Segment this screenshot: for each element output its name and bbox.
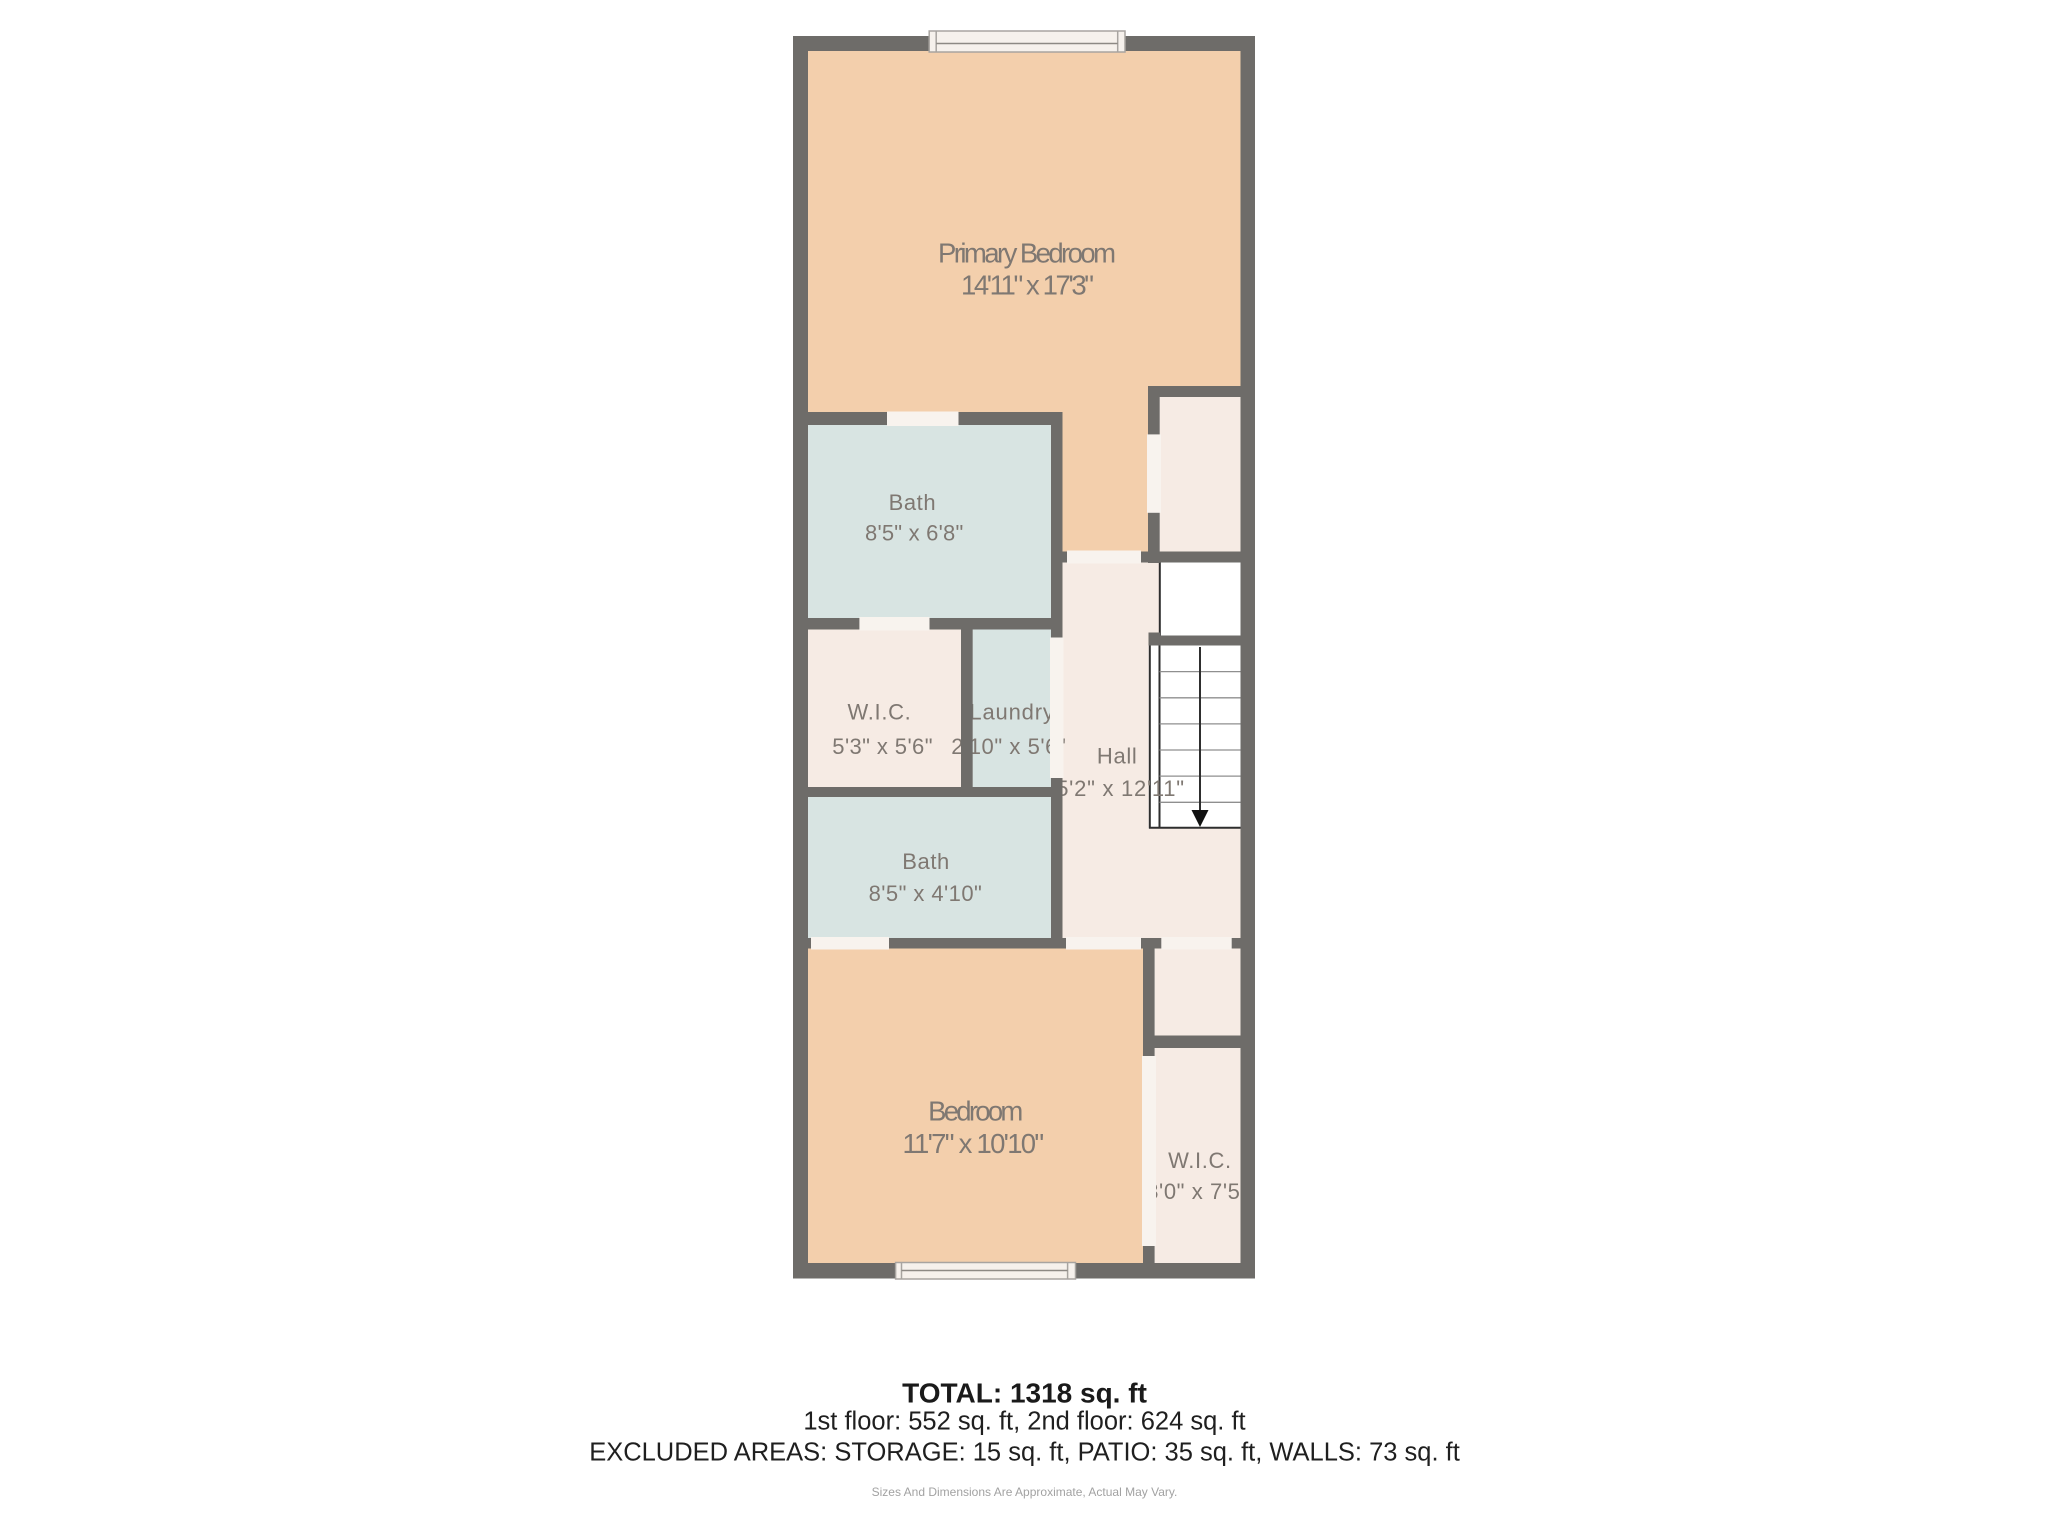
svg-text:Bath: Bath: [902, 849, 949, 874]
svg-text:EXCLUDED AREAS: STORAGE: 15 sq: EXCLUDED AREAS: STORAGE: 15 sq. ft, PATI…: [589, 1439, 1460, 1467]
svg-text:3'0" x 7'5: 3'0" x 7'5: [1146, 1179, 1240, 1204]
svg-text:Hall: Hall: [1097, 744, 1137, 769]
svg-text:W.I.C.: W.I.C.: [1168, 1148, 1231, 1173]
svg-text:5'3" x 5'6": 5'3" x 5'6": [832, 734, 932, 759]
svg-text:Bath: Bath: [889, 490, 936, 515]
svg-text:Primary Bedroom: Primary Bedroom: [938, 238, 1116, 269]
svg-text:8'5" x 6'8": 8'5" x 6'8": [865, 520, 963, 545]
svg-text:Laundry: Laundry: [969, 700, 1054, 725]
svg-text:W.I.C.: W.I.C.: [848, 700, 911, 725]
svg-text:1st floor: 552 sq. ft, 2nd flo: 1st floor: 552 sq. ft, 2nd floor: 624 sq…: [803, 1408, 1245, 1436]
svg-text:8'5" x 4'10": 8'5" x 4'10": [869, 881, 982, 906]
svg-text:11'7" x 10'10": 11'7" x 10'10": [903, 1128, 1045, 1159]
svg-text:5'2" x 12'11": 5'2" x 12'11": [1056, 776, 1184, 801]
svg-text:Sizes And Dimensions Are Appro: Sizes And Dimensions Are Approximate, Ac…: [872, 1485, 1178, 1499]
svg-text:Bedroom: Bedroom: [928, 1095, 1023, 1126]
svg-text:TOTAL: 1318 sq. ft: TOTAL: 1318 sq. ft: [902, 1378, 1147, 1409]
svg-text:14'11" x 17'3": 14'11" x 17'3": [961, 270, 1094, 301]
